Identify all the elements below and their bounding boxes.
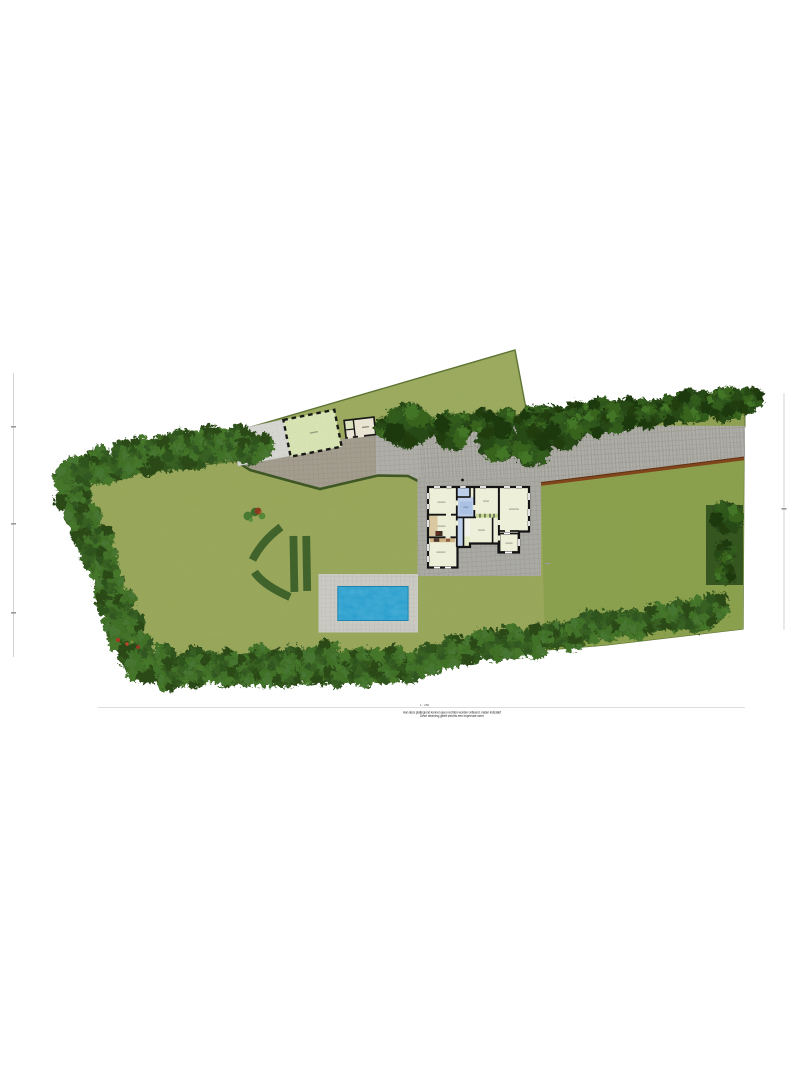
svg-text:1 : 250: 1 : 250	[420, 703, 430, 707]
svg-text:Deze tekening geeft slechts ee: Deze tekening geeft slechts een impressi…	[420, 714, 485, 718]
